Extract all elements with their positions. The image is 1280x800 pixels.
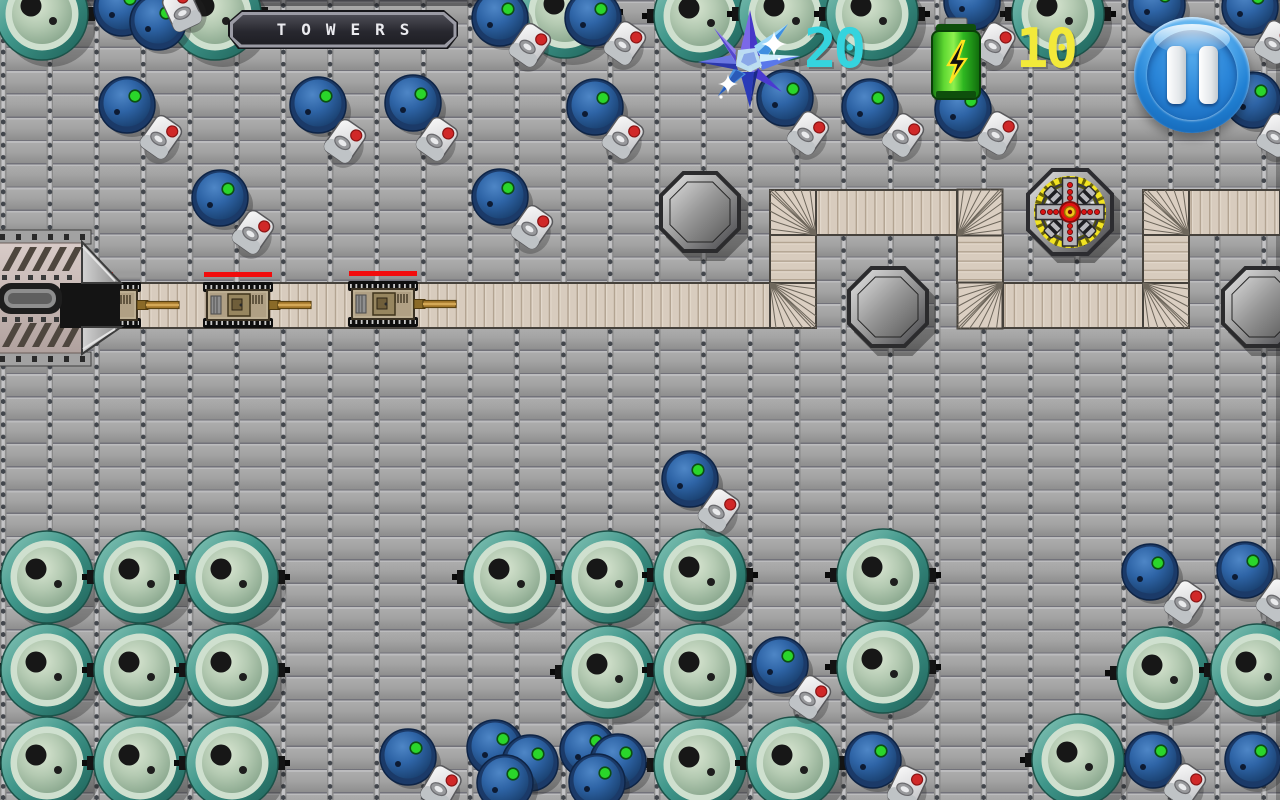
energy-count: 10 [1016, 22, 1075, 76]
teal-barrel [1020, 714, 1136, 800]
path-segment [816, 190, 957, 235]
teal-barrel [1105, 627, 1221, 726]
teal-barrel [452, 531, 568, 630]
teal-barrel [825, 529, 941, 628]
teal-barrel [174, 717, 290, 800]
path-corner [1143, 283, 1189, 328]
path-corner [770, 190, 816, 235]
game-viewport: TOWERS 20 10 [0, 0, 1280, 800]
tower-platform[interactable] [659, 171, 748, 261]
path-segment [770, 235, 816, 283]
teal-barrel [642, 529, 758, 628]
path-segment [1143, 235, 1189, 283]
path-corner [958, 283, 1003, 329]
teal-barrel [735, 717, 851, 800]
teal-barrel [174, 624, 290, 723]
enemy-spawner-base [0, 230, 121, 366]
tower-platform[interactable] [1221, 266, 1280, 356]
tower-platform[interactable] [847, 266, 936, 356]
blue-barrel [1225, 732, 1280, 792]
game-world [0, 0, 1280, 800]
path-segment [1003, 283, 1143, 328]
path-segment [957, 235, 1003, 283]
teal-barrel [825, 621, 941, 720]
title-banner: TOWERS [228, 10, 458, 49]
title-banner-label: TOWERS [262, 20, 425, 39]
crystal-star-icon [696, 8, 800, 112]
pause-icon [1134, 17, 1250, 133]
path-segment [1189, 190, 1280, 235]
teal-barrel [1199, 624, 1280, 723]
battery-icon [929, 17, 983, 103]
crystal-count: 20 [804, 22, 863, 76]
teal-barrel [642, 624, 758, 723]
path-corner [1143, 190, 1189, 235]
teal-barrel [174, 531, 290, 630]
gatling-tower[interactable] [1026, 168, 1120, 263]
path-corner [958, 190, 1003, 236]
pause-button[interactable] [1134, 17, 1250, 133]
path-corner [770, 283, 816, 328]
teal-barrel [0, 0, 100, 67]
